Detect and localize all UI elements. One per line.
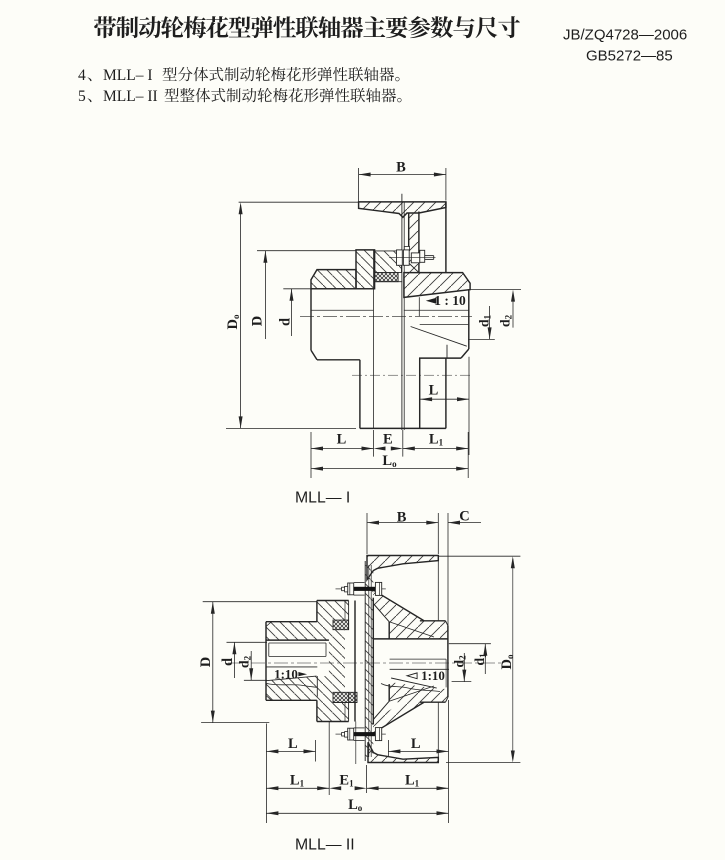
svg-text:1 : 10: 1 : 10 (434, 293, 466, 308)
svg-text:1:10: 1:10 (274, 667, 298, 682)
svg-text:B: B (397, 510, 407, 526)
svg-text:4: 4 (78, 67, 86, 84)
svg-text:C: C (459, 509, 469, 525)
svg-text:MLL— I: MLL— I (295, 490, 350, 507)
svg-text:L: L (411, 736, 421, 752)
svg-text:L: L (429, 383, 439, 399)
svg-text:L: L (337, 432, 347, 448)
svg-text:5: 5 (78, 88, 86, 105)
svg-text:D: D (250, 316, 266, 326)
svg-text:GB5272—85: GB5272—85 (586, 48, 673, 65)
svg-text:MLL– I: MLL– I (103, 67, 153, 84)
svg-text:d: d (277, 318, 293, 326)
svg-text:L: L (288, 736, 298, 752)
svg-text:1:10: 1:10 (421, 668, 445, 683)
svg-text:MLL— II: MLL— II (295, 837, 355, 854)
svg-text:E: E (383, 432, 393, 448)
svg-text:B: B (396, 160, 406, 176)
svg-text:D: D (198, 657, 214, 667)
svg-text:MLL– II: MLL– II (103, 88, 158, 105)
svg-text:d: d (220, 658, 236, 666)
svg-text:JB/ZQ4728—2006: JB/ZQ4728—2006 (563, 27, 687, 44)
